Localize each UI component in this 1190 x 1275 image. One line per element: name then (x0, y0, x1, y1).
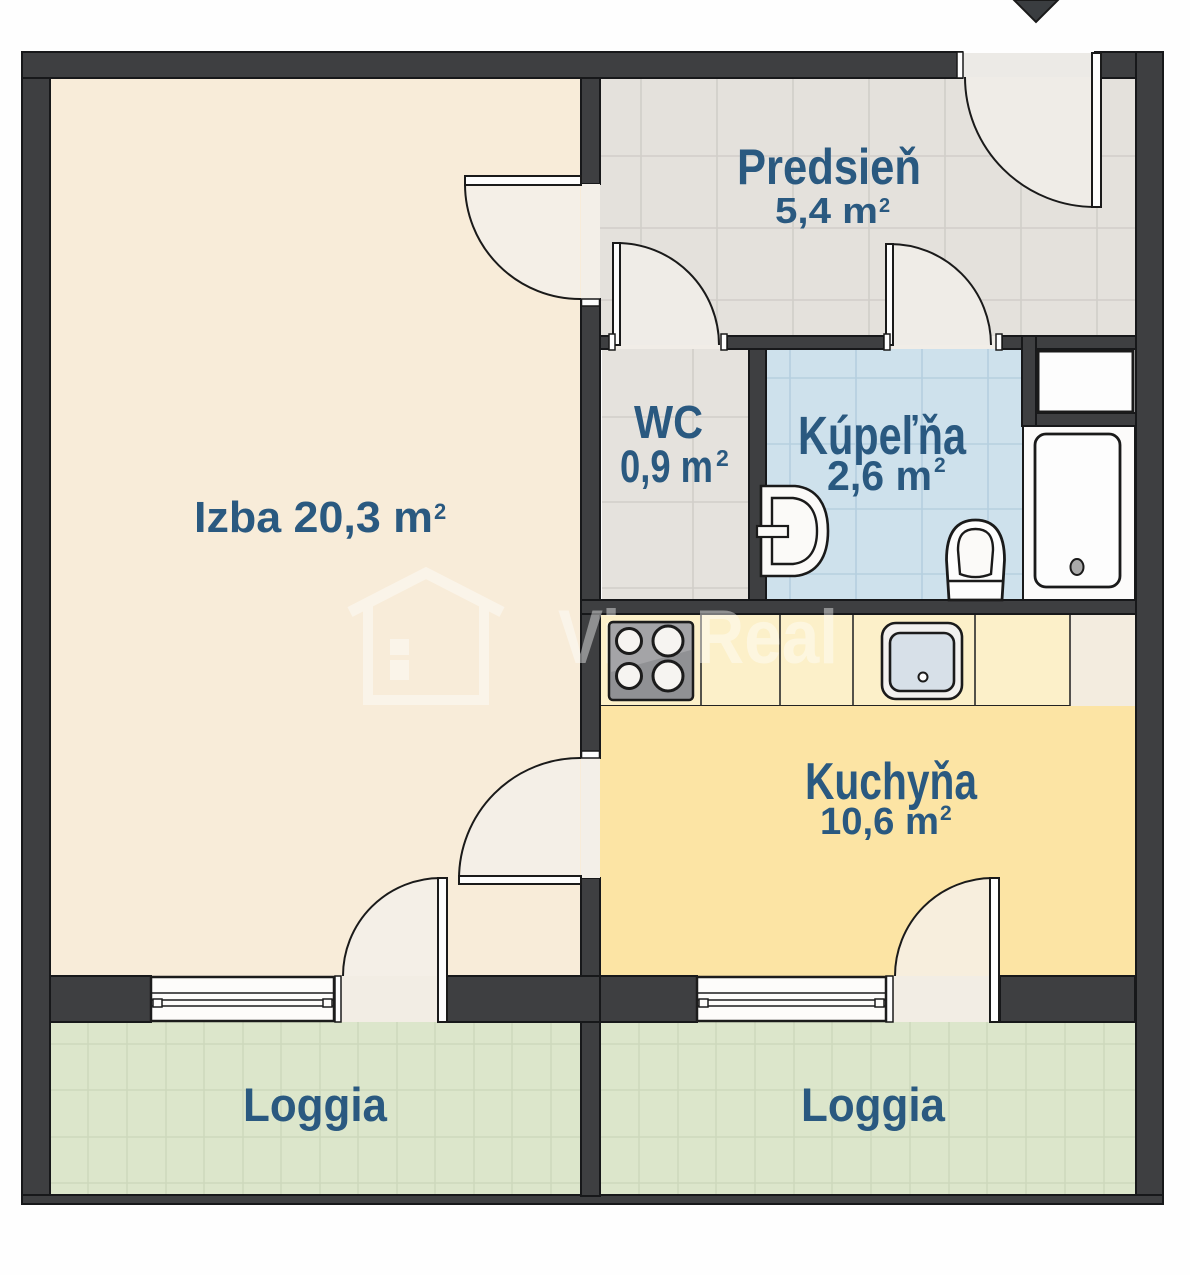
svg-text:Loggia: Loggia (243, 1078, 388, 1131)
svg-text:Predsieň: Predsieň (737, 139, 921, 195)
svg-text:2: 2 (434, 499, 446, 524)
svg-text:2: 2 (879, 195, 890, 217)
svg-text:0,9 m: 0,9 m (620, 441, 713, 492)
svg-text:5,4 m: 5,4 m (775, 190, 878, 231)
svg-text:2: 2 (934, 454, 946, 477)
svg-text:Izba 20,3 m: Izba 20,3 m (194, 493, 433, 542)
svg-text:Loggia: Loggia (801, 1078, 946, 1131)
svg-text:10,6 m: 10,6 m (820, 801, 939, 843)
svg-text:VizuReal: VizuReal (558, 595, 838, 680)
svg-text:2,6 m: 2,6 m (827, 452, 932, 499)
svg-text:2: 2 (940, 802, 952, 825)
svg-text:2: 2 (716, 445, 729, 471)
